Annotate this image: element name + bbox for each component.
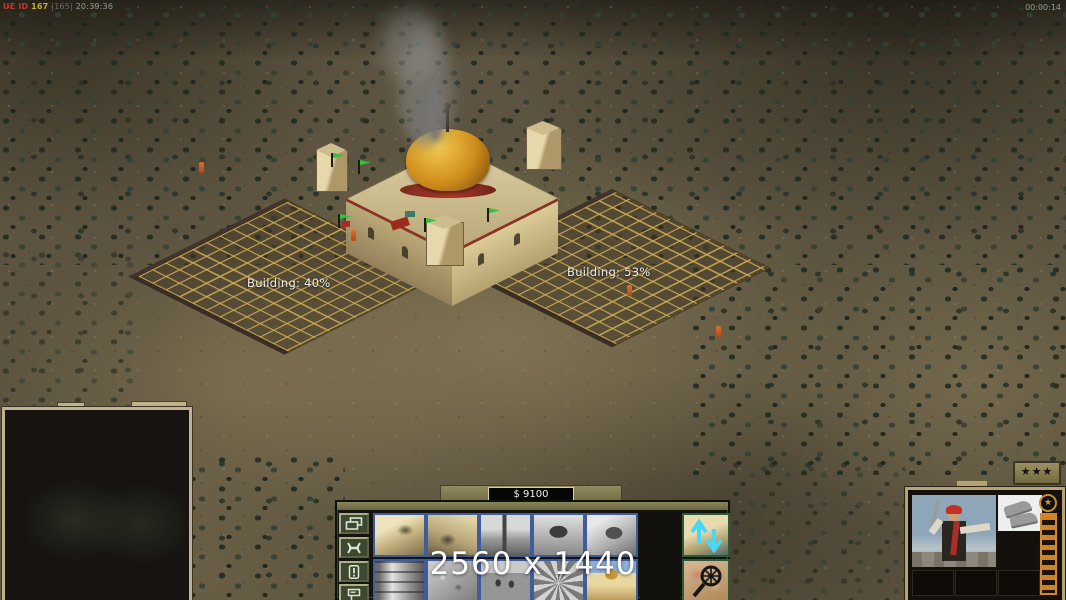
match-timer: 00:00:14 xyxy=(1025,3,1061,12)
worker-unit[interactable] xyxy=(627,285,632,296)
worker-unit[interactable] xyxy=(716,326,721,337)
hq-tower xyxy=(526,128,562,170)
hq-building[interactable] xyxy=(300,90,590,290)
inventory-slot[interactable] xyxy=(998,570,1040,596)
experience-bar xyxy=(1040,513,1057,595)
supply-pallet xyxy=(405,211,415,217)
smoke-plume xyxy=(382,10,440,82)
empty-slot-zone xyxy=(640,512,681,600)
signpost-icon xyxy=(345,588,363,600)
green-flag-icon xyxy=(424,218,426,232)
inventory-slot[interactable] xyxy=(955,570,997,596)
equipment-boots-slot[interactable] xyxy=(998,495,1042,531)
debug-ue-label: UE ID xyxy=(3,2,28,11)
structures-tab-button[interactable] xyxy=(339,513,369,534)
window xyxy=(402,245,408,259)
repair-tab-button[interactable] xyxy=(339,537,369,558)
inventory-slot[interactable] xyxy=(912,570,954,596)
map-magnifier-icon xyxy=(684,561,728,600)
veterancy-star-emblem: ★ xyxy=(1039,494,1057,512)
building-progress-label: Building: 53% xyxy=(567,265,651,279)
upgrade-arrows-icon xyxy=(684,515,728,555)
rank-stars-badge: ★★★ xyxy=(1013,461,1061,485)
alert-tab-button[interactable] xyxy=(339,561,369,582)
hq-tower xyxy=(426,222,464,266)
portrait-red-beret xyxy=(946,505,962,514)
debug-clock: 20:39:36 xyxy=(76,2,114,11)
green-flag-icon xyxy=(338,214,340,228)
green-flag-icon xyxy=(358,160,360,174)
worker-unit[interactable] xyxy=(351,230,356,241)
window xyxy=(368,226,374,240)
supply-pallet xyxy=(342,221,350,227)
signpost-tab-button[interactable] xyxy=(339,584,369,600)
build-slot-6[interactable] xyxy=(373,559,426,600)
debug-ue-value: 167 xyxy=(31,2,48,11)
map-scout-slot[interactable] xyxy=(682,559,730,600)
panel-top-strip xyxy=(337,502,728,510)
building-progress-label: Building: 40% xyxy=(247,276,331,290)
upgrade-slot[interactable] xyxy=(682,513,730,557)
green-flag-icon xyxy=(487,208,489,222)
game-viewport[interactable]: Building: 40% Building: 53% UE ID 167 |1… xyxy=(0,0,1066,600)
debug-readout: UE ID 167 |165| 20:39:36 xyxy=(3,2,113,11)
wrench-icon xyxy=(345,541,363,555)
window xyxy=(478,252,484,266)
windows-icon xyxy=(345,517,363,531)
minimap[interactable] xyxy=(2,407,192,600)
green-flag-icon xyxy=(331,153,333,167)
resolution-overlay: 2560 x 1440 xyxy=(430,546,637,582)
unit-portrait[interactable] xyxy=(912,495,996,567)
worker-unit[interactable] xyxy=(199,162,204,173)
unit-panel: ★ xyxy=(905,487,1065,600)
window xyxy=(514,232,520,246)
exclamation-icon xyxy=(345,565,363,579)
build-slot-1[interactable] xyxy=(373,513,426,557)
debug-alt-value: |165| xyxy=(51,2,73,11)
